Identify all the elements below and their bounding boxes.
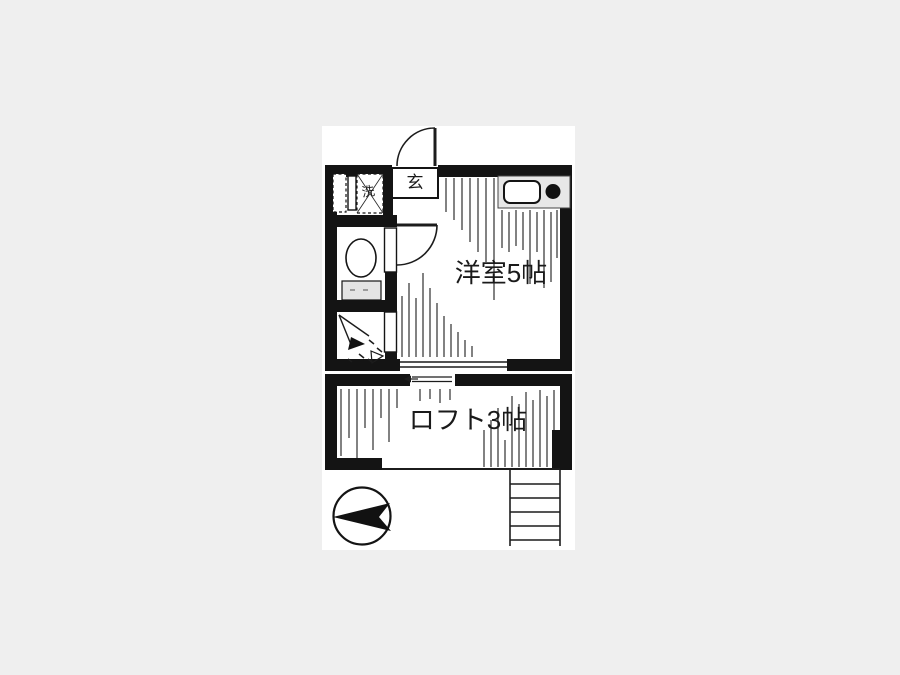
shower-icon	[339, 315, 383, 363]
floorplan-drawing	[0, 0, 900, 675]
shower-door-icon	[385, 312, 397, 352]
room-label-loft: ロフト3帖	[402, 400, 534, 437]
room-label-entrance: 玄	[392, 168, 438, 198]
room-door-icon	[397, 225, 437, 265]
stairs-icon	[510, 470, 560, 546]
floorplan-page: 洋室5帖 ロフト3帖 玄 洗	[0, 0, 900, 675]
toilet-icon	[342, 239, 381, 300]
burner-icon	[546, 184, 561, 199]
room-label-western-room: 洋室5帖	[437, 253, 565, 290]
sink-icon	[504, 181, 540, 203]
kitchen-counter-icon	[498, 176, 570, 208]
entrance-door-icon	[397, 128, 435, 166]
window-icon	[400, 362, 507, 367]
north-arrow-icon	[333, 488, 391, 545]
toilet-door-icon	[385, 228, 397, 272]
floor-hatching-loft-left	[341, 389, 397, 464]
loft-ladder-icon	[404, 376, 452, 383]
